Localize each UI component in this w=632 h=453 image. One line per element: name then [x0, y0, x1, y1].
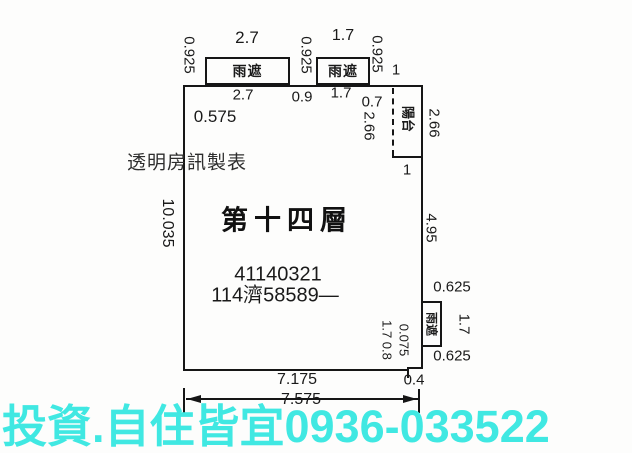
dim-balcony-height-outer: 2.66: [426, 108, 443, 137]
dim-top-gap-3: 0.925: [369, 35, 386, 73]
dim-step-inner: 1.7 0.8: [380, 320, 395, 360]
dim-right-gap-top: 0.625: [433, 279, 471, 296]
dim-top-gap-2: 0.925: [298, 36, 315, 74]
dim-inner-top-1: 2.7: [233, 87, 254, 104]
realtor-watermark: 投資.自住皆宜0936-033522: [2, 390, 550, 453]
dim-balcony-width-bottom: 1: [403, 162, 411, 179]
wall-left: [183, 85, 185, 371]
dim-inner-top-4: 0.7: [362, 94, 383, 111]
dim-right-gap-bottom: 0.625: [433, 348, 471, 365]
rain-shade-box-2: 雨遮: [316, 57, 370, 85]
balcony-label: 陽台: [400, 106, 419, 132]
wall-top: [184, 85, 423, 87]
plan-case-number: 114濟58589—: [211, 279, 339, 308]
dim-left-height: 10.035: [158, 199, 176, 248]
maker-credit: 透明房訊製表: [127, 148, 247, 175]
dim-top-shade2-width: 1.7: [332, 27, 354, 45]
balcony-door-dashed-line: [392, 88, 394, 156]
dim-right-height: 4.95: [423, 213, 440, 242]
dim-bottom-main: 7.175: [277, 371, 317, 389]
rain-shade-1-label: 雨遮: [233, 61, 263, 81]
floor-plan-scan: 陽台 雨遮 雨遮 雨遮 0.925 2.7 0.925 1.7 0.925 1 …: [0, 0, 632, 453]
rain-shade-2-label: 雨遮: [328, 61, 358, 81]
floor-title: 第十四層: [221, 199, 353, 238]
dim-right-shade-height: 1.7: [456, 314, 473, 335]
rain-shade-right-label: 雨遮: [424, 312, 441, 336]
rain-shade-box-1: 雨遮: [205, 57, 290, 85]
dim-balcony-height-inner: 2.66: [361, 111, 378, 140]
balcony-bottom-line: [392, 156, 423, 158]
dim-bottom-step: 0.4: [404, 372, 425, 389]
dim-inner-top-3: 1.7: [331, 85, 352, 102]
dim-inner-top-2: 0.9: [292, 89, 313, 106]
dim-top-gap-1: 0.925: [181, 36, 198, 74]
dim-inner-left-offset: 0.575: [194, 107, 237, 127]
dim-step-depth: 0.075: [397, 324, 412, 357]
dim-top-shade1-width: 2.7: [235, 28, 259, 48]
dim-top-balcony-width: 1: [392, 62, 400, 79]
